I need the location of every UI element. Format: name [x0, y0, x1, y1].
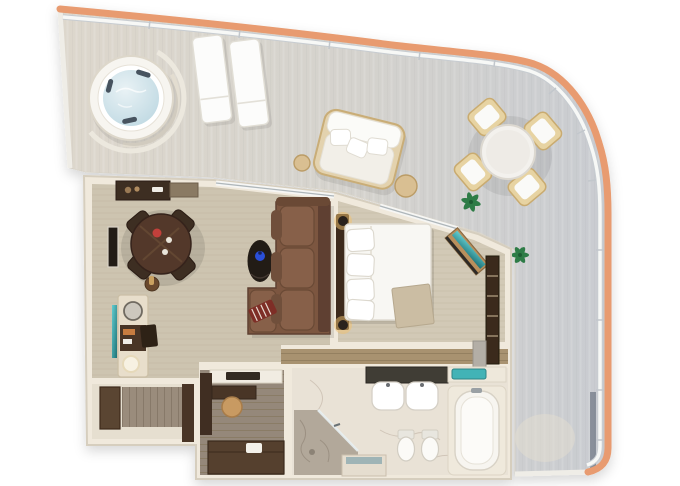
sofa-bolster [271, 210, 282, 240]
teal-accent-strip [112, 305, 117, 358]
entry-closet [182, 384, 194, 442]
wall-tv [108, 227, 118, 267]
dressing-counter-tray [226, 372, 260, 380]
counter-bowl [125, 187, 131, 193]
sofa-cushion [280, 206, 314, 246]
toilet [398, 430, 415, 461]
tub-faucet [471, 388, 482, 393]
closet-shelving [486, 256, 499, 364]
outdoor-side-table [395, 175, 417, 197]
shower-bench [342, 455, 386, 476]
entry-door [100, 387, 120, 429]
outdoor-side-table [294, 155, 310, 171]
sofa-bolster [271, 252, 282, 282]
towel-tray [452, 369, 486, 379]
cabinet-item [246, 443, 262, 453]
deck-light-patch [515, 414, 575, 462]
sofa-cushion [280, 290, 314, 330]
double-vanity-counter [366, 367, 448, 383]
table-plate [166, 237, 172, 243]
deck-bottom-edge [515, 472, 588, 474]
bidet [422, 430, 439, 461]
counter-bowl [134, 186, 139, 191]
shower-drain [309, 449, 315, 455]
bed-pillow [346, 253, 374, 276]
bed-throw [392, 284, 435, 328]
bed-pillow [346, 228, 374, 252]
coffee-table [248, 240, 273, 282]
dressing-stool [222, 397, 242, 417]
sofa-backrest [318, 204, 330, 332]
dressing-wardrobe [200, 373, 212, 435]
table-flowers [153, 229, 162, 238]
plan-root [60, 9, 608, 479]
kitchenette-counter-end [170, 183, 198, 197]
faucet [420, 383, 424, 387]
faucet [386, 383, 390, 387]
bathtub [448, 386, 506, 475]
bed-pillow [346, 278, 374, 301]
bed-pillow [346, 299, 374, 321]
sofa-arm [276, 197, 330, 206]
counter-tray [152, 187, 163, 192]
console-tray [124, 302, 142, 320]
sofa-cushion [280, 248, 314, 288]
wine-bottle [149, 276, 154, 285]
console-item [123, 339, 132, 344]
dressing-cabinet [208, 441, 284, 474]
console-stool [140, 324, 158, 348]
closet-drawers [473, 341, 486, 368]
bed [345, 224, 434, 328]
console-lamp [123, 356, 139, 372]
floor-plan-stage: 3D top-down floor plan of a suite with w… [0, 0, 680, 486]
entry-mat-planks [122, 387, 182, 427]
console-item [123, 329, 135, 335]
table-plate [162, 249, 168, 255]
floor-plan-svg [0, 0, 680, 486]
